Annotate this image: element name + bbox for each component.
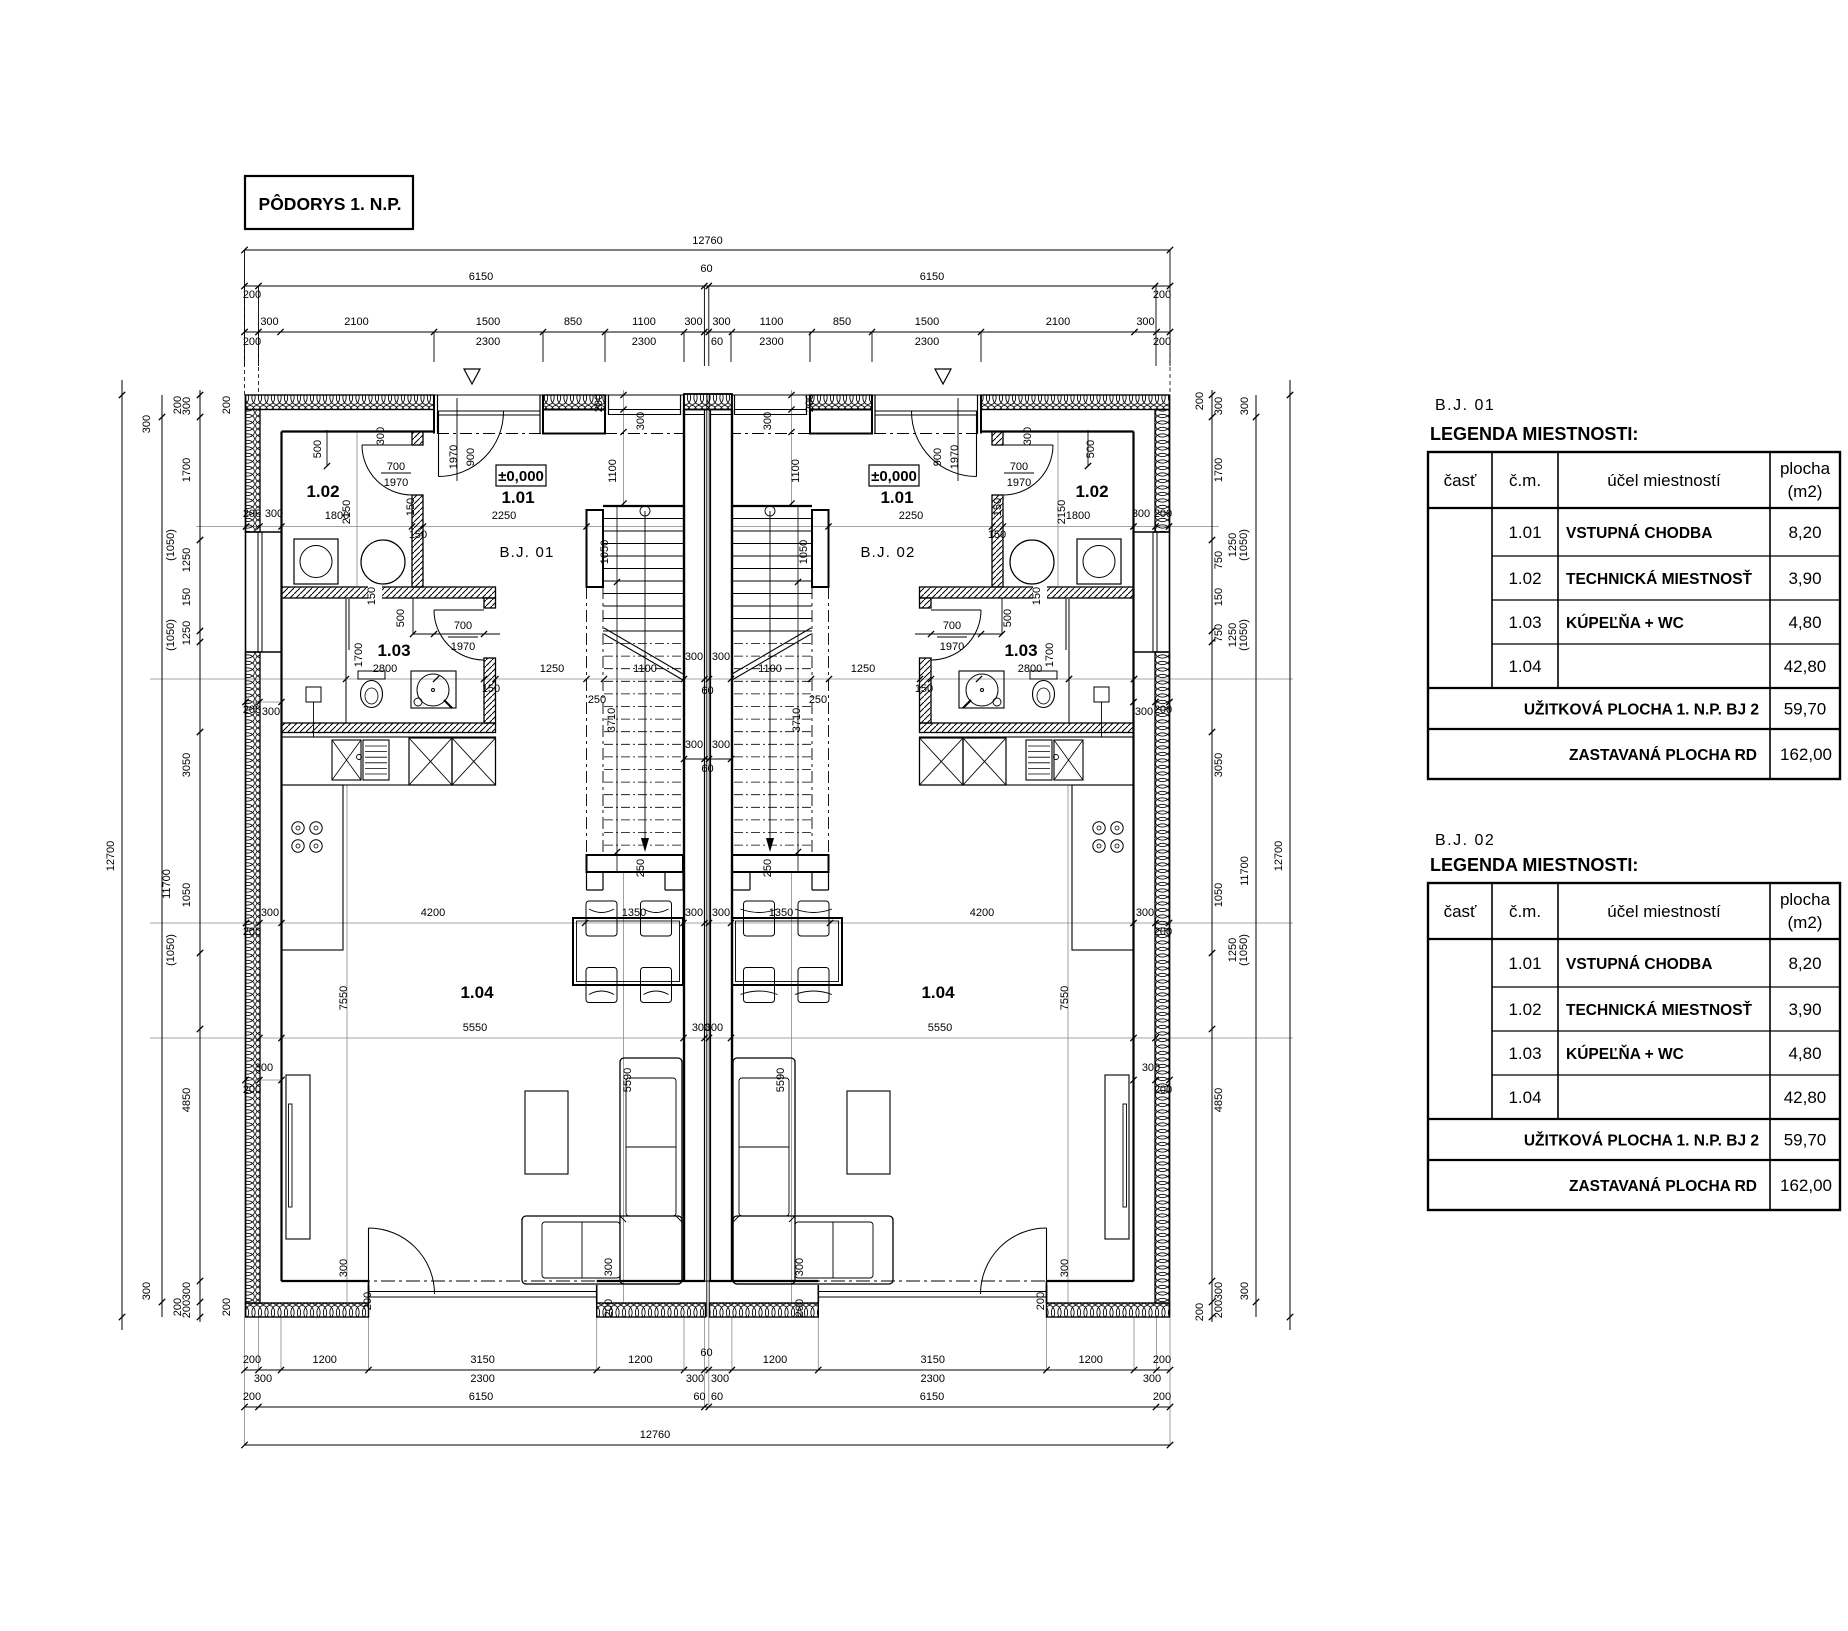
svg-text:200: 200: [1154, 926, 1172, 938]
svg-text:12700: 12700: [105, 841, 117, 872]
svg-text:150: 150: [405, 498, 417, 516]
svg-text:300: 300: [1132, 508, 1150, 520]
svg-text:200: 200: [593, 394, 605, 412]
svg-text:12700: 12700: [1273, 841, 1285, 872]
svg-text:1970: 1970: [451, 641, 475, 653]
svg-text:KÚPEĽŇA + WC: KÚPEĽŇA + WC: [1566, 1045, 1684, 1063]
svg-text:59,70: 59,70: [1784, 700, 1827, 719]
svg-text:6150: 6150: [920, 1391, 944, 1403]
svg-text:VSTUPNÁ CHODBA: VSTUPNÁ CHODBA: [1566, 525, 1712, 542]
svg-text:300: 300: [141, 415, 153, 433]
svg-text:500: 500: [395, 609, 407, 627]
svg-text:300: 300: [762, 412, 774, 430]
svg-text:1.03: 1.03: [1508, 1044, 1541, 1063]
svg-text:1100: 1100: [790, 459, 802, 483]
svg-text:7550: 7550: [1059, 986, 1071, 1010]
svg-text:1200: 1200: [1078, 1354, 1102, 1366]
svg-text:300: 300: [262, 706, 280, 718]
svg-text:200: 200: [1153, 1354, 1171, 1366]
svg-text:60: 60: [701, 685, 713, 697]
svg-text:200: 200: [243, 1391, 261, 1403]
svg-text:1.02: 1.02: [1075, 482, 1108, 501]
svg-text:1200: 1200: [628, 1354, 652, 1366]
svg-text:300: 300: [261, 907, 279, 919]
svg-text:300: 300: [181, 1282, 193, 1300]
svg-text:1050: 1050: [599, 540, 611, 564]
svg-text:2150: 2150: [1056, 500, 1068, 524]
svg-text:2100: 2100: [344, 316, 368, 328]
svg-text:ZASTAVANÁ PLOCHA RD: ZASTAVANÁ PLOCHA RD: [1569, 747, 1757, 764]
svg-text:1700: 1700: [1044, 643, 1056, 667]
svg-text:60: 60: [700, 1347, 712, 1359]
svg-text:300: 300: [1239, 397, 1251, 415]
svg-text:3710: 3710: [606, 708, 618, 732]
svg-text:850: 850: [564, 316, 582, 328]
svg-text:1970: 1970: [384, 477, 408, 489]
svg-text:4,80: 4,80: [1788, 1044, 1821, 1063]
svg-text:11700: 11700: [161, 869, 173, 899]
svg-text:LEGENDA MIESTNOSTI:: LEGENDA MIESTNOSTI:: [1430, 855, 1638, 875]
svg-text:300: 300: [712, 907, 730, 919]
svg-text:8,20: 8,20: [1788, 954, 1821, 973]
svg-text:B.J. 02: B.J. 02: [1435, 832, 1495, 849]
svg-text:1100: 1100: [632, 316, 656, 328]
svg-text:300: 300: [603, 1258, 615, 1276]
svg-text:1100: 1100: [607, 459, 619, 483]
svg-text:200: 200: [1154, 704, 1172, 716]
svg-text:TECHNICKÁ MIESTNOSŤ: TECHNICKÁ MIESTNOSŤ: [1566, 1001, 1753, 1019]
svg-text:1200: 1200: [312, 1354, 336, 1366]
svg-text:1050: 1050: [181, 883, 193, 907]
svg-text:750: 750: [1213, 624, 1225, 642]
svg-text:250: 250: [635, 859, 647, 877]
svg-text:1.01: 1.01: [1508, 523, 1541, 542]
svg-text:1500: 1500: [915, 316, 939, 328]
svg-text:1.03: 1.03: [377, 641, 410, 660]
svg-text:300: 300: [685, 907, 703, 919]
svg-text:750: 750: [1213, 551, 1225, 569]
svg-text:6150: 6150: [469, 1391, 493, 1403]
svg-text:1.01: 1.01: [880, 488, 913, 507]
svg-text:500: 500: [312, 440, 324, 458]
svg-text:300: 300: [684, 316, 702, 328]
svg-text:300: 300: [685, 651, 703, 663]
svg-text:300: 300: [255, 1062, 273, 1074]
svg-text:1050: 1050: [798, 540, 810, 564]
svg-text:časť: časť: [1444, 902, 1477, 921]
svg-text:ZASTAVANÁ PLOCHA RD: ZASTAVANÁ PLOCHA RD: [1569, 1178, 1757, 1195]
svg-text:1050: 1050: [1213, 883, 1225, 907]
svg-text:200: 200: [243, 1084, 261, 1096]
svg-text:300: 300: [635, 412, 647, 430]
svg-text:4200: 4200: [970, 907, 994, 919]
svg-text:1250: 1250: [181, 548, 193, 572]
svg-text:1.01: 1.01: [501, 488, 534, 507]
svg-text:1250: 1250: [851, 663, 875, 675]
svg-text:200: 200: [243, 1354, 261, 1366]
svg-text:12760: 12760: [692, 235, 723, 247]
svg-text:4850: 4850: [181, 1088, 193, 1112]
svg-text:200: 200: [1035, 1292, 1047, 1310]
svg-text:5590: 5590: [622, 1068, 634, 1092]
svg-text:200: 200: [804, 394, 816, 412]
svg-text:1.04: 1.04: [460, 983, 494, 1002]
svg-text:1250: 1250: [540, 663, 564, 675]
svg-text:300: 300: [1135, 706, 1153, 718]
svg-text:2250: 2250: [899, 510, 923, 522]
svg-text:200: 200: [362, 1292, 374, 1310]
svg-text:6150: 6150: [469, 271, 493, 283]
svg-text:B.J. 02: B.J. 02: [860, 544, 915, 561]
svg-text:1700: 1700: [353, 643, 365, 667]
svg-text:250: 250: [762, 859, 774, 877]
svg-text:č.m.: č.m.: [1509, 471, 1541, 490]
svg-text:12760: 12760: [640, 1429, 671, 1441]
svg-text:(m2): (m2): [1788, 482, 1823, 501]
svg-text:200: 200: [181, 1300, 193, 1318]
svg-text:1350: 1350: [769, 907, 793, 919]
svg-text:5550: 5550: [928, 1022, 952, 1034]
svg-text:300: 300: [794, 1258, 806, 1276]
svg-text:1100: 1100: [758, 663, 782, 675]
svg-text:7550: 7550: [338, 986, 350, 1010]
svg-text:1.01: 1.01: [1508, 954, 1541, 973]
svg-text:300: 300: [1059, 1259, 1071, 1277]
svg-text:±0,000: ±0,000: [498, 468, 544, 485]
svg-text:300: 300: [711, 1373, 729, 1385]
svg-text:plocha: plocha: [1780, 459, 1831, 478]
svg-text:150: 150: [915, 683, 933, 695]
svg-text:60: 60: [711, 336, 723, 348]
svg-text:300: 300: [265, 508, 283, 520]
svg-text:200: 200: [1154, 508, 1172, 520]
svg-text:PÔDORYS 1. N.P.: PÔDORYS 1. N.P.: [259, 193, 402, 214]
svg-text:300: 300: [712, 316, 730, 328]
svg-text:700: 700: [387, 461, 405, 473]
svg-text:300: 300: [375, 427, 387, 445]
svg-text:150: 150: [181, 588, 193, 606]
svg-text:3050: 3050: [181, 753, 193, 777]
svg-text:300: 300: [1136, 316, 1154, 328]
svg-text:300: 300: [254, 1373, 272, 1385]
svg-text:300: 300: [705, 1022, 723, 1034]
svg-text:UŽITKOVÁ PLOCHA 1. N.P. BJ 2: UŽITKOVÁ PLOCHA 1. N.P. BJ 2: [1524, 701, 1759, 719]
svg-text:200: 200: [1153, 336, 1171, 348]
svg-text:200: 200: [1194, 1303, 1206, 1321]
svg-text:1970: 1970: [940, 641, 964, 653]
svg-text:2800: 2800: [373, 663, 397, 675]
svg-text:4,80: 4,80: [1788, 613, 1821, 632]
svg-text:150: 150: [988, 529, 1006, 541]
svg-text:1.04: 1.04: [1508, 657, 1541, 676]
svg-text:200: 200: [243, 508, 261, 520]
svg-text:200: 200: [243, 336, 261, 348]
svg-text:300: 300: [181, 397, 193, 415]
svg-text:(1050): (1050): [1238, 619, 1250, 651]
svg-text:4850: 4850: [1213, 1088, 1225, 1112]
svg-text:1700: 1700: [1213, 458, 1225, 482]
svg-text:3,90: 3,90: [1788, 569, 1821, 588]
svg-text:200: 200: [1154, 1084, 1172, 1096]
svg-text:2300: 2300: [921, 1373, 945, 1385]
svg-text:300: 300: [685, 739, 703, 751]
svg-text:700: 700: [943, 620, 961, 632]
svg-text:200: 200: [1153, 289, 1171, 301]
svg-text:150: 150: [366, 587, 378, 605]
svg-text:2100: 2100: [1046, 316, 1070, 328]
svg-text:900: 900: [465, 448, 477, 466]
svg-text:700: 700: [1010, 461, 1028, 473]
svg-text:300: 300: [260, 316, 278, 328]
svg-text:(1050): (1050): [1238, 529, 1250, 561]
svg-text:8,20: 8,20: [1788, 523, 1821, 542]
svg-text:200: 200: [794, 1299, 806, 1317]
svg-text:(1050): (1050): [165, 934, 177, 966]
svg-text:1250: 1250: [181, 621, 193, 645]
svg-text:3710: 3710: [791, 708, 803, 732]
svg-text:2300: 2300: [476, 336, 500, 348]
svg-text:300: 300: [1136, 907, 1154, 919]
svg-text:TECHNICKÁ MIESTNOSŤ: TECHNICKÁ MIESTNOSŤ: [1566, 570, 1753, 588]
svg-text:250: 250: [809, 694, 827, 706]
svg-text:300: 300: [1022, 427, 1034, 445]
svg-text:300: 300: [712, 739, 730, 751]
svg-text:60: 60: [711, 1391, 723, 1403]
svg-text:200: 200: [243, 704, 261, 716]
svg-text:42,80: 42,80: [1784, 1088, 1827, 1107]
svg-text:3,90: 3,90: [1788, 1000, 1821, 1019]
svg-text:4200: 4200: [421, 907, 445, 919]
svg-text:2300: 2300: [759, 336, 783, 348]
svg-text:162,00: 162,00: [1780, 1176, 1832, 1195]
svg-text:150: 150: [992, 498, 1004, 516]
svg-text:200: 200: [221, 1298, 233, 1316]
svg-text:300: 300: [686, 1373, 704, 1385]
svg-text:300: 300: [1142, 1062, 1160, 1074]
svg-text:2300: 2300: [632, 336, 656, 348]
svg-text:60: 60: [701, 763, 713, 775]
svg-text:3150: 3150: [470, 1354, 494, 1366]
svg-text:300: 300: [1143, 1373, 1161, 1385]
svg-text:účel miestností: účel miestností: [1607, 471, 1721, 490]
svg-text:200: 200: [1194, 392, 1206, 410]
svg-text:UŽITKOVÁ PLOCHA 1. N.P. BJ 2: UŽITKOVÁ PLOCHA 1. N.P. BJ 2: [1524, 1132, 1759, 1150]
svg-text:5550: 5550: [463, 1022, 487, 1034]
svg-text:150: 150: [482, 683, 500, 695]
svg-text:200: 200: [1153, 1391, 1171, 1403]
svg-text:300: 300: [1213, 397, 1225, 415]
svg-text:1.02: 1.02: [1508, 1000, 1541, 1019]
svg-text:1970: 1970: [949, 445, 961, 469]
svg-text:500: 500: [1085, 440, 1097, 458]
svg-text:300: 300: [1239, 1282, 1251, 1300]
svg-text:1800: 1800: [1066, 510, 1090, 522]
svg-text:č.m.: č.m.: [1509, 902, 1541, 921]
svg-text:200: 200: [243, 289, 261, 301]
svg-text:60: 60: [693, 1391, 705, 1403]
svg-text:42,80: 42,80: [1784, 657, 1827, 676]
svg-text:500: 500: [1002, 609, 1014, 627]
svg-text:2250: 2250: [492, 510, 516, 522]
svg-text:162,00: 162,00: [1780, 745, 1832, 764]
svg-text:300: 300: [141, 1282, 153, 1300]
svg-text:59,70: 59,70: [1784, 1131, 1827, 1150]
svg-text:5590: 5590: [775, 1068, 787, 1092]
svg-text:2150: 2150: [341, 500, 353, 524]
svg-text:(m2): (m2): [1788, 913, 1823, 932]
svg-text:200: 200: [221, 396, 233, 414]
svg-text:6150: 6150: [920, 271, 944, 283]
svg-text:účel miestností: účel miestností: [1607, 902, 1721, 921]
svg-text:3150: 3150: [921, 1354, 945, 1366]
svg-text:250: 250: [588, 694, 606, 706]
svg-text:1.04: 1.04: [1508, 1088, 1541, 1107]
svg-text:2800: 2800: [1018, 663, 1042, 675]
svg-text:1.03: 1.03: [1508, 613, 1541, 632]
svg-text:1.04: 1.04: [921, 983, 955, 1002]
svg-text:2300: 2300: [915, 336, 939, 348]
svg-text:KÚPEĽŇA + WC: KÚPEĽŇA + WC: [1566, 614, 1684, 632]
svg-text:150: 150: [1213, 588, 1225, 606]
svg-text:11700: 11700: [1239, 856, 1251, 886]
svg-text:850: 850: [833, 316, 851, 328]
svg-text:1100: 1100: [633, 663, 657, 675]
svg-text:(1050): (1050): [165, 529, 177, 561]
svg-text:900: 900: [932, 448, 944, 466]
svg-text:±0,000: ±0,000: [871, 468, 917, 485]
svg-text:150: 150: [409, 529, 427, 541]
svg-text:300: 300: [1213, 1282, 1225, 1300]
svg-text:2300: 2300: [470, 1373, 494, 1385]
svg-text:(1050): (1050): [165, 619, 177, 651]
svg-text:B.J. 01: B.J. 01: [1435, 397, 1495, 414]
svg-text:1100: 1100: [760, 316, 784, 328]
svg-text:700: 700: [454, 620, 472, 632]
svg-text:200: 200: [243, 926, 261, 938]
svg-text:1200: 1200: [763, 1354, 787, 1366]
svg-text:1970: 1970: [448, 445, 460, 469]
svg-text:VSTUPNÁ CHODBA: VSTUPNÁ CHODBA: [1566, 956, 1712, 973]
svg-text:150: 150: [1031, 587, 1043, 605]
svg-text:200: 200: [1213, 1300, 1225, 1318]
svg-text:(1050): (1050): [1238, 934, 1250, 966]
svg-text:1.02: 1.02: [1508, 569, 1541, 588]
svg-text:1500: 1500: [476, 316, 500, 328]
svg-text:1.03: 1.03: [1004, 641, 1037, 660]
svg-text:1.02: 1.02: [306, 482, 339, 501]
svg-text:LEGENDA MIESTNOSTI:: LEGENDA MIESTNOSTI:: [1430, 424, 1638, 444]
svg-text:plocha: plocha: [1780, 890, 1831, 909]
svg-text:1350: 1350: [622, 907, 646, 919]
svg-text:60: 60: [700, 263, 712, 275]
svg-text:3050: 3050: [1213, 753, 1225, 777]
svg-text:časť: časť: [1444, 471, 1477, 490]
svg-text:1970: 1970: [1007, 477, 1031, 489]
svg-text:B.J. 01: B.J. 01: [499, 544, 554, 561]
svg-text:300: 300: [712, 651, 730, 663]
svg-text:200: 200: [603, 1299, 615, 1317]
svg-text:300: 300: [338, 1259, 350, 1277]
svg-text:1700: 1700: [181, 458, 193, 482]
